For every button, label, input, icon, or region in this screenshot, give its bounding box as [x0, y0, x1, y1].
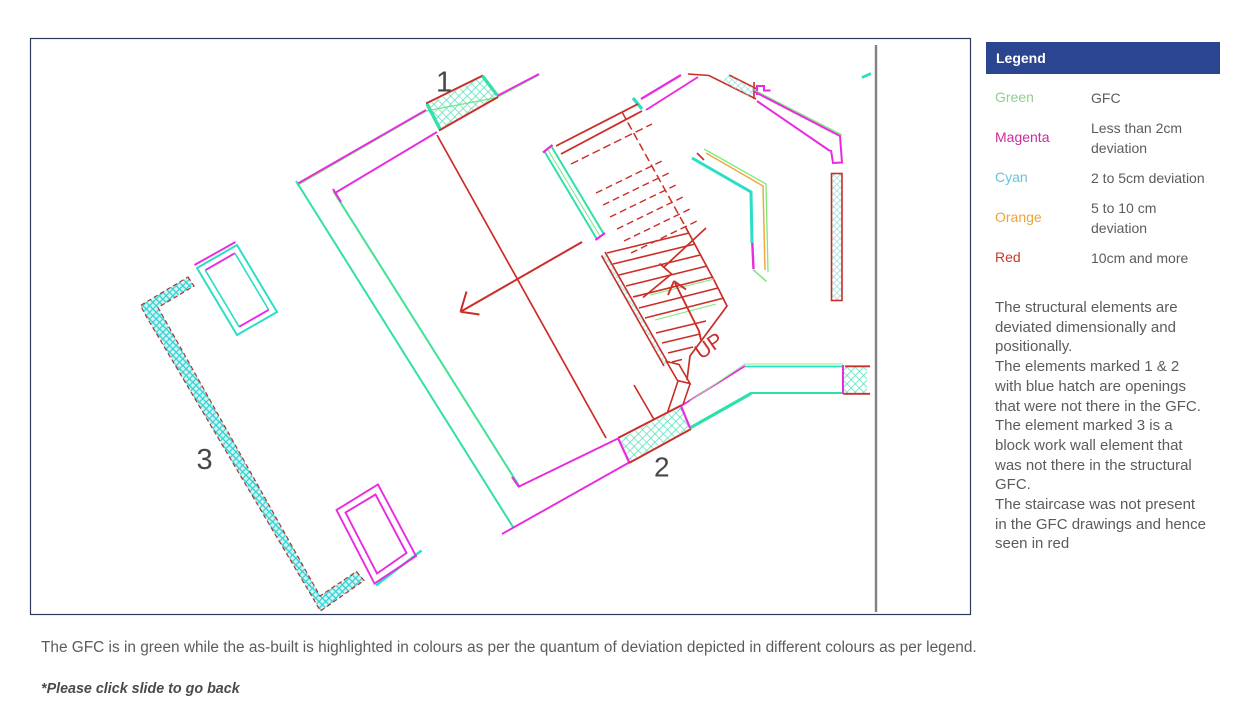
svg-text:2: 2 [654, 452, 670, 483]
svg-text:3: 3 [197, 444, 213, 476]
svg-text:1: 1 [436, 67, 452, 99]
